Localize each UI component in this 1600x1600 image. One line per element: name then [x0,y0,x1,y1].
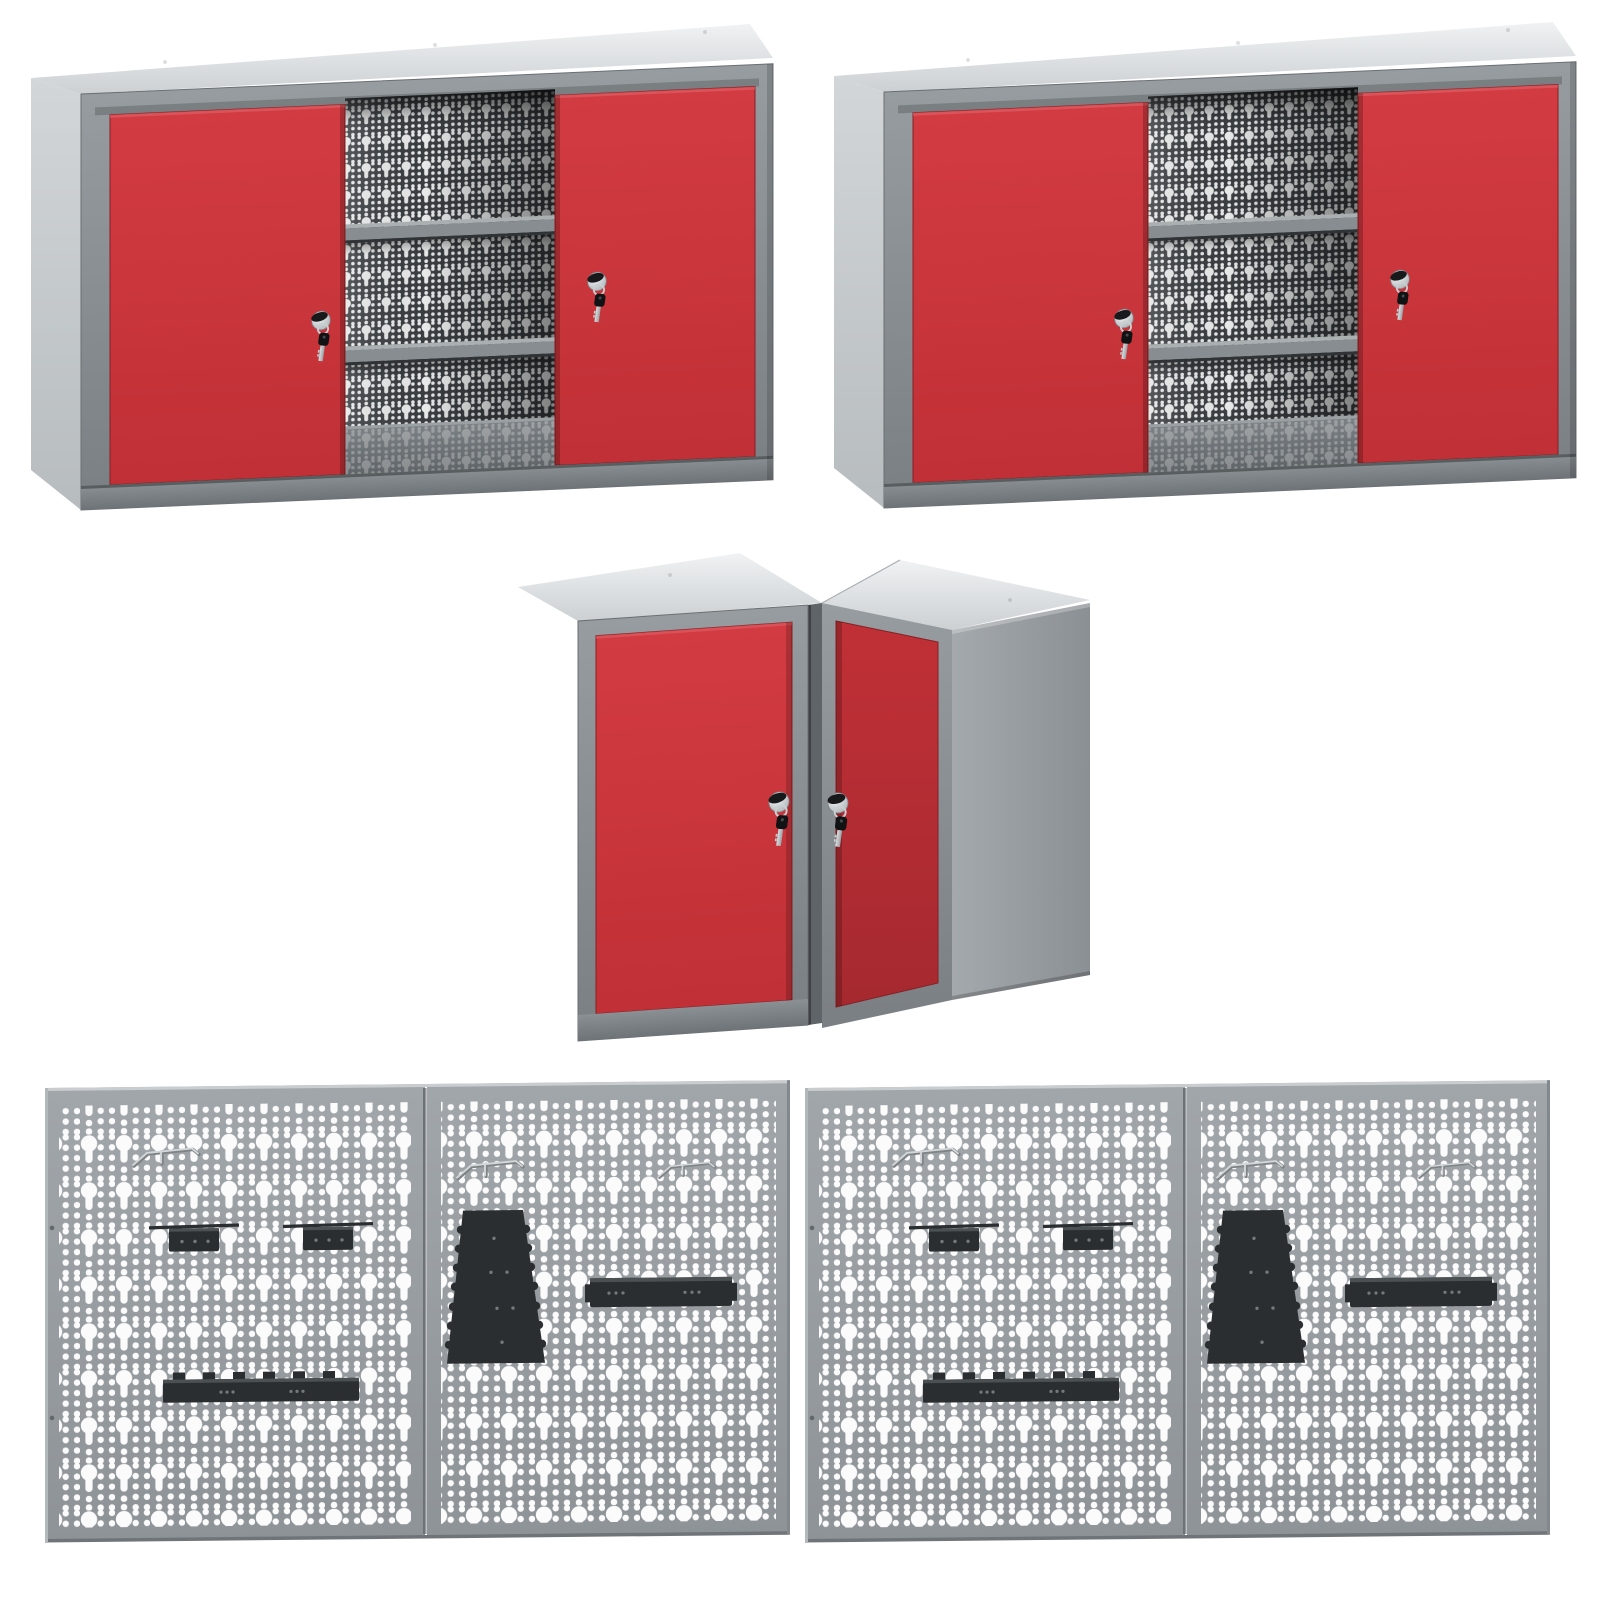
corner-cabinet-right-door [822,603,952,1028]
corner-cabinet-left-front [578,605,808,1041]
corner-cabinet-left-door [596,622,792,1014]
pegboard-set-left [45,1080,790,1542]
corner-wall-cabinet [518,553,1090,1041]
workshop-furniture-scene [0,0,1600,1600]
wall-cabinet-top-left [31,24,773,510]
product-collage [0,0,1600,1600]
corner-cabinet-side-slab [952,603,1090,1000]
pegboard-set-right [805,1080,1550,1542]
wall-cabinet-top-right [834,22,1576,508]
